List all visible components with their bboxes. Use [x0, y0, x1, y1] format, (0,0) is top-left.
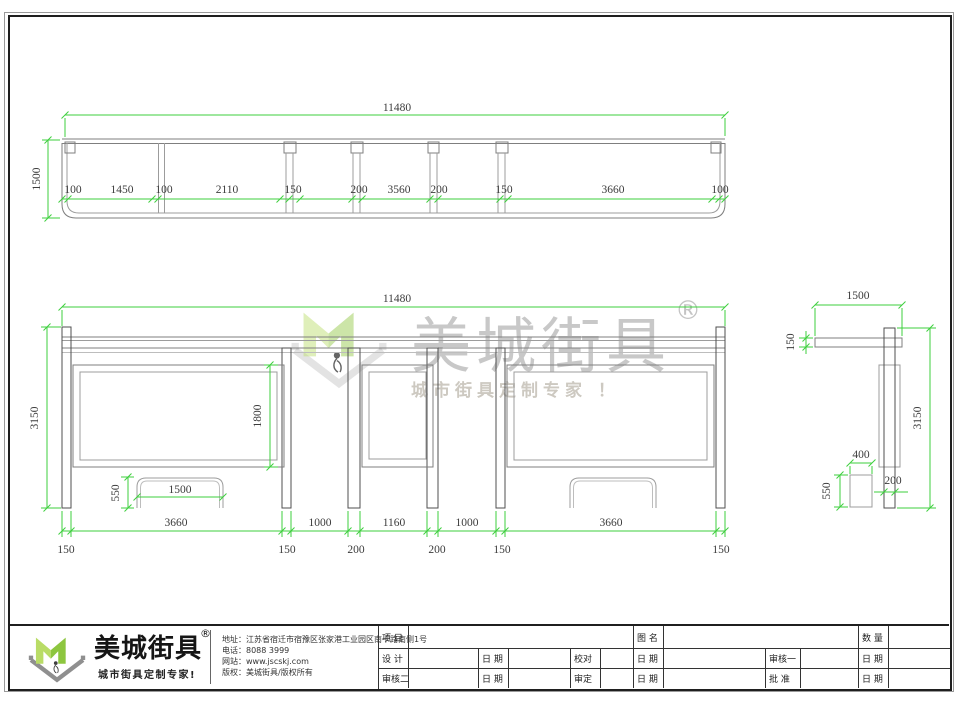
dim-label: 100: [155, 184, 173, 196]
field-review2: [409, 669, 479, 688]
label-date: 日 期: [634, 669, 664, 688]
footer-slogan: 城市街具定制专家!: [98, 666, 196, 681]
label-review1: 审核一: [766, 649, 801, 668]
dim-label: 100: [64, 184, 82, 196]
dim-label: 150: [495, 184, 513, 196]
dim-label: 550: [110, 484, 122, 502]
title-table-row: 审核二 日 期 审定 日 期 批 准 日 期: [379, 669, 950, 688]
dim-label: 3660: [600, 517, 623, 529]
dim-label: 1500: [31, 167, 43, 190]
field-date: [509, 669, 571, 688]
dim-label: 1450: [111, 184, 134, 196]
brand-logo-icon: [26, 629, 88, 686]
field-ratify: [801, 669, 859, 688]
label-date: 日 期: [859, 649, 889, 668]
footer-divider: [210, 630, 211, 684]
front-view: 11480 3150 1800 550 1500 3660 1000 1160 …: [29, 293, 730, 556]
field-date: [889, 669, 950, 688]
field-approve: [601, 669, 634, 688]
field-design: [409, 649, 479, 668]
label-ratify: 批 准: [766, 669, 801, 688]
field-date: [664, 649, 766, 668]
field-date: [509, 649, 571, 668]
title-block: 美城街具 ® 城市街具定制专家! 地址：江苏省宿迁市宿豫区张家港工业园区南卡路南…: [10, 624, 949, 689]
dim-label: 150: [785, 333, 797, 351]
dim-label: 1000: [309, 517, 332, 529]
dim-label: 3150: [912, 406, 924, 429]
field-date: [664, 669, 766, 688]
footer-brand-area: 美城街具 ® 城市街具定制专家! 地址：江苏省宿迁市宿豫区张家港工业园区南卡路南…: [10, 626, 378, 689]
dim-label: 3660: [165, 517, 188, 529]
dim-label: 200: [350, 184, 368, 196]
label-project: 项 目: [379, 626, 409, 648]
label-approve: 审定: [571, 669, 601, 688]
dim-label: 200: [347, 544, 365, 556]
field-proofread: [601, 649, 634, 668]
dim-label: 1800: [252, 404, 264, 427]
dim-label: 150: [284, 184, 302, 196]
field-drawing-name: [664, 626, 859, 648]
dim-label: 150: [57, 544, 75, 556]
label-design: 设 计: [379, 649, 409, 668]
dim-label: 150: [493, 544, 511, 556]
side-view: 1500 150 3150 400 550 200: [785, 290, 936, 512]
dim-label: 3560: [388, 184, 411, 196]
dim-label: 550: [821, 482, 833, 500]
dim-label: 3150: [29, 406, 41, 429]
dim-label: 1000: [456, 517, 479, 529]
dim-label: 400: [852, 449, 870, 461]
dim-label: 2110: [216, 184, 239, 196]
dim-label: 1160: [383, 517, 406, 529]
dim-label: 200: [430, 184, 448, 196]
field-review1: [801, 649, 859, 668]
field-project: [409, 626, 634, 648]
dim-label: 11480: [383, 293, 412, 305]
dim-label: 1500: [169, 484, 192, 496]
dim-label: 3660: [602, 184, 625, 196]
title-table-row: 项 目 图 名 数 量: [379, 626, 950, 649]
title-table: 项 目 图 名 数 量 设 计 日 期 校对 日 期 审核一 日 期: [378, 626, 950, 689]
field-quantity: [889, 626, 950, 648]
label-date: 日 期: [479, 669, 509, 688]
label-drawing-name: 图 名: [634, 626, 664, 648]
dim-label: 150: [712, 544, 730, 556]
dim-label: 1500: [847, 290, 870, 302]
title-table-row: 设 计 日 期 校对 日 期 审核一 日 期: [379, 649, 950, 669]
footer-brand: 美城街具: [94, 628, 202, 665]
field-date: [889, 649, 950, 668]
cad-drawing: 11480 1500 100 1450 100 2110 150 200 356…: [0, 0, 960, 704]
label-date: 日 期: [859, 669, 889, 688]
label-review2: 审核二: [379, 669, 409, 688]
dim-label: 200: [884, 475, 902, 487]
label-date: 日 期: [479, 649, 509, 668]
label-quantity: 数 量: [859, 626, 889, 648]
dim-label: 200: [428, 544, 446, 556]
label-date: 日 期: [634, 649, 664, 668]
top-view: 11480 1500 100 1450 100 2110 150 200 356…: [31, 102, 729, 222]
dim-label: 150: [278, 544, 296, 556]
label-proofread: 校对: [571, 649, 601, 668]
dim-label: 11480: [383, 102, 412, 114]
dim-label: 100: [711, 184, 729, 196]
drawing-sheet: 美城街具 ® 城市街具定制专家 ！: [0, 0, 960, 704]
